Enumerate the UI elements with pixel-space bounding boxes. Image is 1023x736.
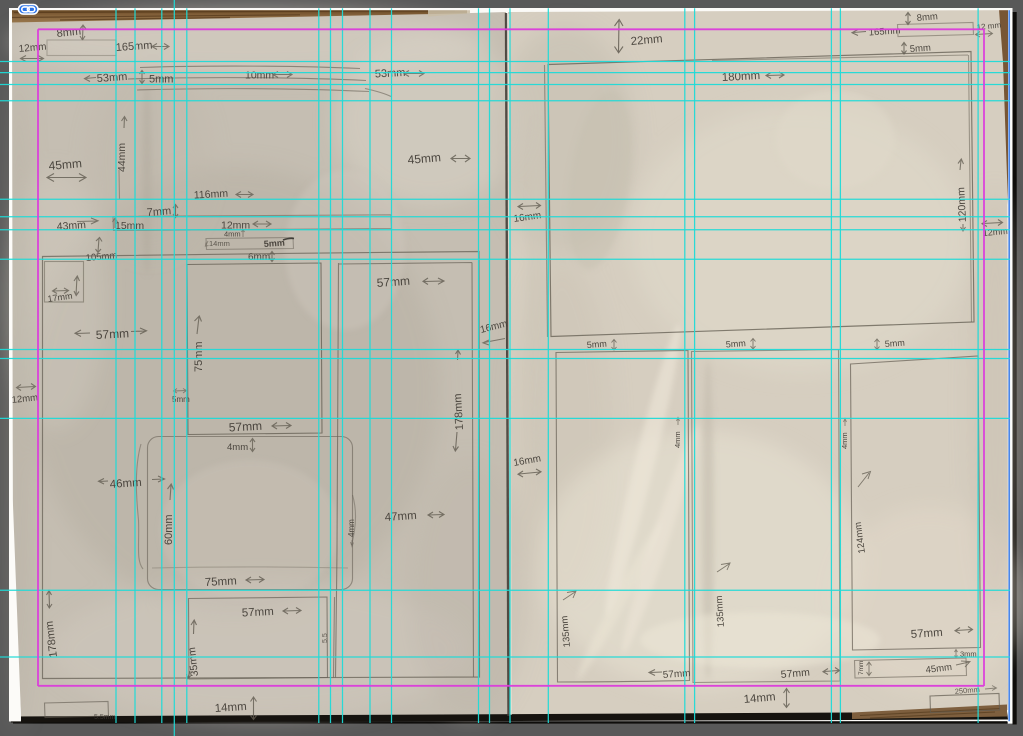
svg-text:46mm: 46mm xyxy=(109,477,142,491)
svg-text:57mm: 57mm xyxy=(242,606,275,620)
svg-text:75mm: 75mm xyxy=(193,341,205,372)
svg-text:4mm: 4mm xyxy=(840,432,849,449)
svg-text:165mm: 165mm xyxy=(868,25,900,38)
svg-text:47mm: 47mm xyxy=(384,510,417,524)
svg-text:60mm: 60mm xyxy=(163,514,175,545)
svg-text:5mm: 5mm xyxy=(586,339,607,350)
svg-text:178mm: 178mm xyxy=(452,393,466,430)
svg-text:57mm: 57mm xyxy=(228,419,262,435)
svg-text:45mm: 45mm xyxy=(48,156,82,173)
svg-text:135mm: 135mm xyxy=(714,595,727,627)
svg-text:165mm: 165mm xyxy=(115,39,152,54)
svg-text:5mm: 5mm xyxy=(725,338,746,349)
svg-text:5.5mm: 5.5mm xyxy=(94,714,116,721)
svg-text:57mm: 57mm xyxy=(780,666,810,681)
svg-text:5mm: 5mm xyxy=(263,238,285,249)
svg-text:8mm: 8mm xyxy=(916,11,938,24)
svg-text:14mm: 14mm xyxy=(209,239,230,248)
svg-text:14mm: 14mm xyxy=(214,701,247,715)
svg-text:10mm: 10mm xyxy=(245,70,274,82)
svg-text:53mm: 53mm xyxy=(375,67,406,81)
svg-text:5mm: 5mm xyxy=(884,338,905,349)
svg-text:5mm: 5mm xyxy=(909,43,931,55)
svg-text:57mm: 57mm xyxy=(662,668,690,681)
svg-text:4mm: 4mm xyxy=(673,431,682,448)
svg-text:4mm: 4mm xyxy=(227,442,248,453)
svg-text:45mm: 45mm xyxy=(407,150,441,167)
svg-text:57mm: 57mm xyxy=(95,326,129,342)
svg-text:4mm: 4mm xyxy=(347,519,356,537)
svg-text:75mm: 75mm xyxy=(205,575,238,589)
svg-text:7mm: 7mm xyxy=(858,661,865,675)
svg-text:57mm: 57mm xyxy=(910,627,943,641)
svg-text:44mm: 44mm xyxy=(116,143,128,172)
svg-text:5.5: 5.5 xyxy=(322,633,329,643)
svg-text:57mm: 57mm xyxy=(376,274,410,290)
svg-text:8mm: 8mm xyxy=(56,25,82,39)
svg-text:4mm: 4mm xyxy=(224,230,241,239)
